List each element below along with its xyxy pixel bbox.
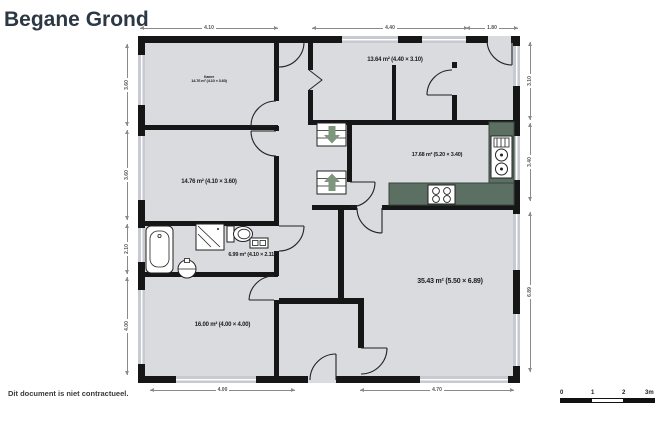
dim-top-2: 4.40 <box>312 25 468 31</box>
room-label-bottom-left: 16.00 m² (4.00 × 4.00) <box>150 322 295 329</box>
room-label-mid-left: 14.76 m² (4.10 × 3.60) <box>140 179 278 186</box>
room-label-top-left: Kamer 14.76 m² (4.10 × 3.60) <box>140 75 278 84</box>
room-label-kitchen: 17.68 m² (5.20 × 3.40) <box>358 152 516 158</box>
stairs-down <box>317 123 346 146</box>
toilet <box>227 226 253 242</box>
page-title: Begane Grond <box>4 8 149 32</box>
disclaimer-text: Dit document is niet contractueel. <box>8 389 128 398</box>
scale-bar: 0 1 2 3m <box>560 390 655 403</box>
shower <box>196 224 224 250</box>
dim-left-2: 3.60 <box>124 130 130 220</box>
dim-left-3: 2.10 <box>124 224 130 274</box>
dim-right-1: 3.10 <box>527 42 533 120</box>
radiator <box>250 238 268 248</box>
scale-bar-labels: 0 1 2 3m <box>560 390 655 398</box>
dim-left-4: 4.00 <box>124 277 130 375</box>
dim-bottom-2: 4.70 <box>360 387 514 393</box>
dim-left-1: 3.60 <box>124 44 130 126</box>
stairs-up <box>317 171 346 194</box>
room-area-top-left: 14.76 m² (4.10 × 3.60) <box>140 79 278 84</box>
dim-right-2: 3.40 <box>527 123 533 201</box>
dim-top-1: 4.10 <box>140 25 278 31</box>
room-label-top-middle: 13.64 m² (4.40 × 3.10) <box>320 57 470 64</box>
stove-hob <box>428 185 455 204</box>
room-label-living: 35.43 m² (5.50 × 6.89) <box>375 278 525 286</box>
bathtub <box>146 226 173 273</box>
dim-top-3: 1.80 <box>466 25 518 31</box>
stairs-down-arrow <box>329 126 336 135</box>
stairs-up-arrow <box>329 182 336 191</box>
dim-right-3: 6.89 <box>527 212 533 372</box>
dim-bottom-1: 4.00 <box>150 387 295 393</box>
room-label-bathroom: 6.99 m² (4.10 × 2.11) <box>192 252 312 258</box>
scale-bar-line <box>560 398 655 403</box>
